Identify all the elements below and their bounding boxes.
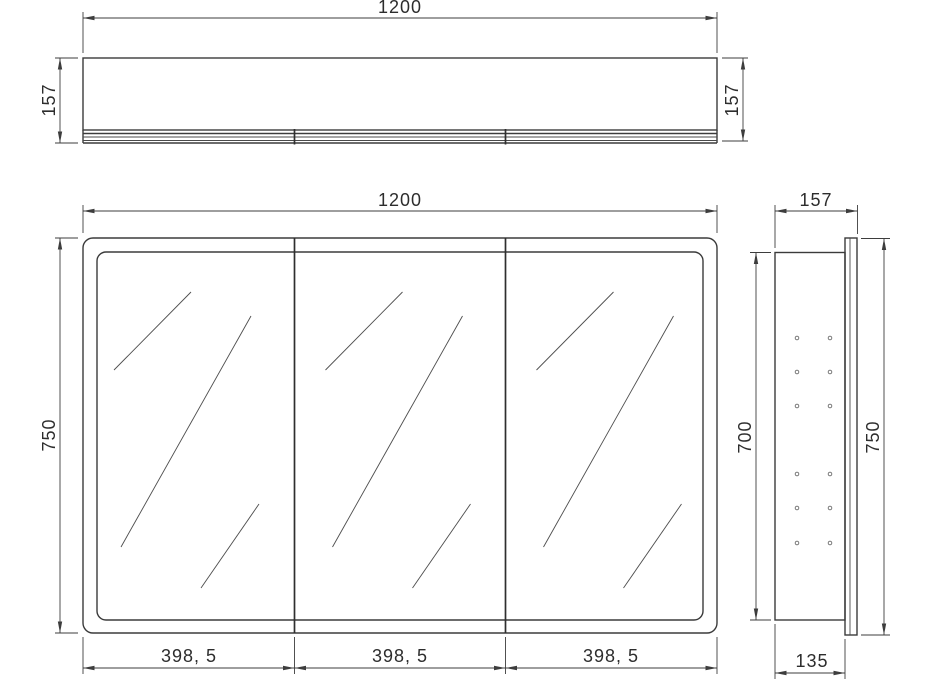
dim-label-door-3: 398, 5 <box>583 646 639 666</box>
dim-label-door-2: 398, 5 <box>372 646 428 666</box>
dim-label-side-outer-height: 750 <box>863 420 883 453</box>
dim-label-top-width: 1200 <box>378 0 422 17</box>
top-view-dim-width: 1200 <box>83 0 717 53</box>
top-view-dim-depth-left: 157 <box>39 58 78 143</box>
top-view: 1200 157 157 <box>39 0 748 145</box>
top-view-dim-depth-right: 157 <box>722 58 748 141</box>
dim-label-front-height: 750 <box>39 418 59 451</box>
side-view-dim-bottom-depth: 135 <box>775 624 845 679</box>
technical-drawing: 1200 157 157 <box>0 0 939 696</box>
dim-label-side-bottom-depth: 135 <box>795 651 828 671</box>
side-view: 157 700 750 135 <box>735 190 890 679</box>
door-panel-edge <box>845 238 857 635</box>
dim-label-top-depth-left: 157 <box>39 83 59 116</box>
front-view: 1200 750 398, 5 398, 5 398, 5 <box>39 190 717 674</box>
mirror-hatch-lines <box>114 292 682 588</box>
shelf-pin-holes <box>795 336 832 545</box>
cabinet-body <box>775 253 845 621</box>
dim-label-side-inner-height: 700 <box>735 420 755 453</box>
top-view-outline <box>83 58 717 145</box>
drawing-canvas: 1200 157 157 <box>0 0 939 696</box>
front-view-outline <box>83 238 717 633</box>
side-view-dim-inner-height: 700 <box>735 253 771 621</box>
dim-label-side-depth: 157 <box>799 190 832 210</box>
dim-label-front-width: 1200 <box>378 190 422 210</box>
side-view-outline <box>775 238 857 635</box>
dim-label-door-1: 398, 5 <box>161 646 217 666</box>
front-view-dim-height: 750 <box>39 238 78 633</box>
dim-label-top-depth-right: 157 <box>722 83 742 116</box>
front-view-dim-width: 1200 <box>83 190 717 233</box>
side-view-dim-outer-height: 750 <box>861 239 890 636</box>
front-view-dim-doors: 398, 5 398, 5 398, 5 <box>83 637 717 674</box>
